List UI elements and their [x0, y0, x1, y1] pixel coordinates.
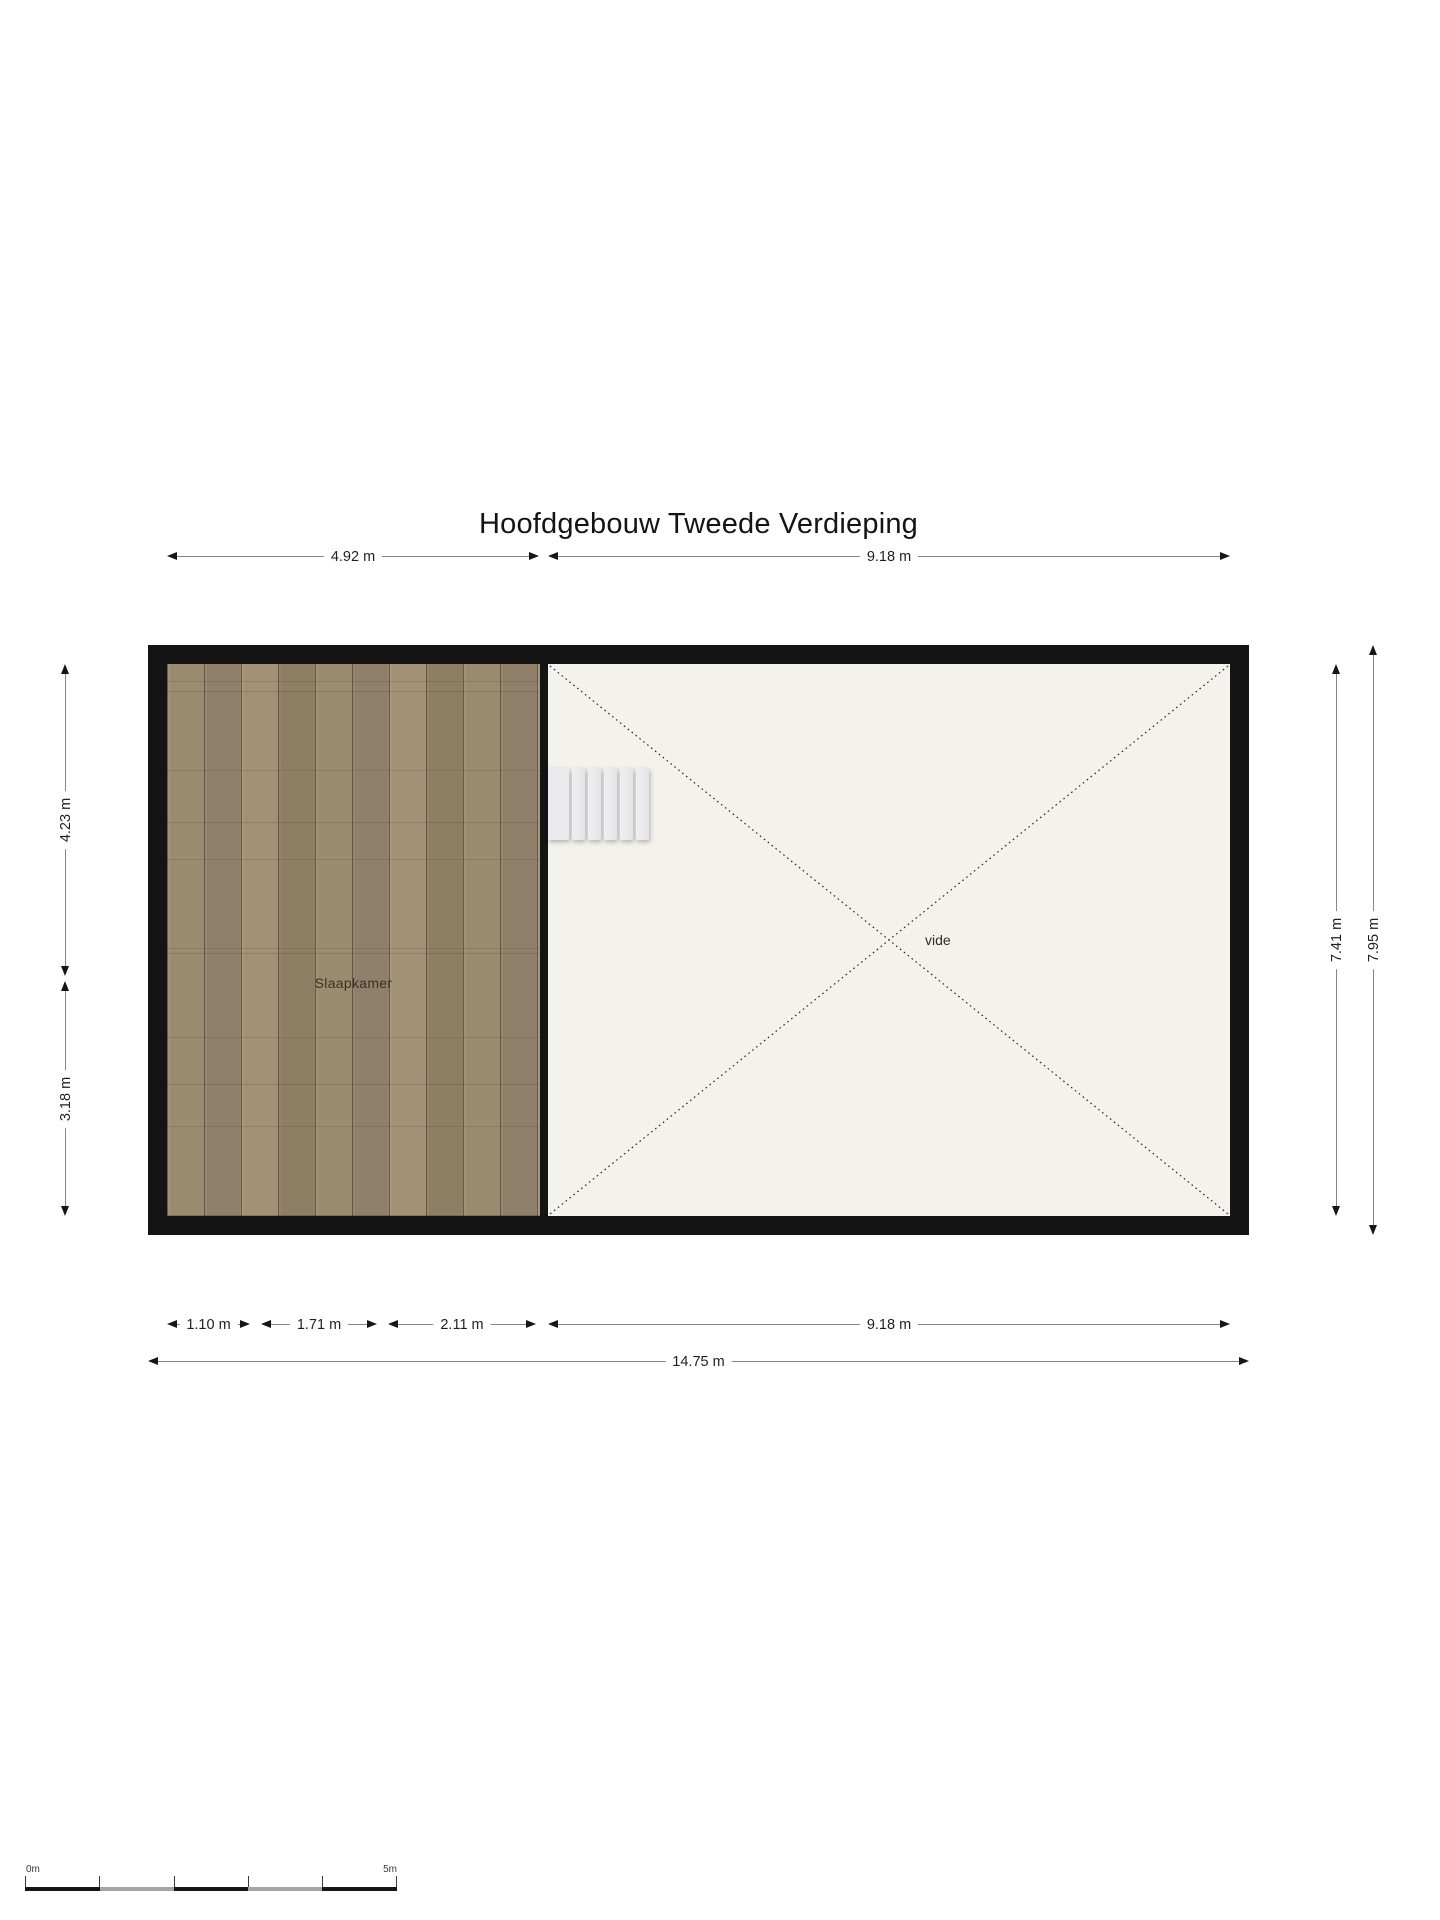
- scale-segment: [174, 1887, 249, 1891]
- area-vide-label: vide: [925, 932, 951, 948]
- room-slaapkamer-label: Slaapkamer: [315, 975, 393, 991]
- arrow-left-icon: [548, 1320, 558, 1328]
- dim-right-inner-height: 7.41 m: [1329, 664, 1345, 1216]
- arrow-down-icon: [61, 1206, 69, 1216]
- dim-bottom-seg-4: 9.18 m: [548, 1317, 1230, 1333]
- stair-tread: [588, 768, 601, 840]
- dimension-label: 4.23 m: [58, 791, 74, 849]
- dim-right-outer-height: 7.95 m: [1366, 645, 1382, 1235]
- scale-end-label: 5m: [383, 1864, 397, 1875]
- vide-cross-icon: [548, 664, 1230, 1216]
- arrow-down-icon: [61, 966, 69, 976]
- stair-tread: [604, 768, 617, 840]
- scale-segment: [25, 1887, 100, 1891]
- scale-segment: [100, 1887, 175, 1891]
- dimension-label: 9.18 m: [860, 1317, 918, 1333]
- arrow-right-icon: [1220, 1320, 1230, 1328]
- scale-segment: [322, 1887, 397, 1891]
- dim-bottom-seg-2: 1.71 m: [261, 1317, 377, 1333]
- dim-top-slaapkamer-width: 4.92 m: [167, 549, 539, 565]
- area-vide: vide: [548, 664, 1230, 1216]
- stair-landing: [548, 768, 569, 840]
- dim-bottom-total-width: 14.75 m: [148, 1354, 1249, 1370]
- arrow-up-icon: [61, 981, 69, 991]
- dimension-label: 9.18 m: [860, 549, 918, 565]
- arrow-right-icon: [1220, 552, 1230, 560]
- arrow-right-icon: [1239, 1357, 1249, 1365]
- dim-left-lower: 3.18 m: [58, 981, 74, 1216]
- arrow-left-icon: [388, 1320, 398, 1328]
- room-slaapkamer: Slaapkamer: [167, 664, 540, 1216]
- arrow-down-icon: [1369, 1225, 1377, 1235]
- floor-plan: Slaapkamer vide: [148, 645, 1249, 1235]
- arrow-right-icon: [529, 552, 539, 560]
- arrow-right-icon: [526, 1320, 536, 1328]
- scale-start-label: 0m: [26, 1864, 40, 1875]
- arrow-left-icon: [548, 552, 558, 560]
- arrow-up-icon: [1369, 645, 1377, 655]
- arrow-right-icon: [240, 1320, 250, 1328]
- arrow-up-icon: [1332, 664, 1340, 674]
- dimension-label: 1.71 m: [290, 1317, 348, 1333]
- dim-bottom-seg-3: 2.11 m: [388, 1317, 536, 1333]
- stair-tread: [636, 768, 649, 840]
- dimension-label: 4.92 m: [324, 549, 382, 565]
- page-title: Hoofdgebouw Tweede Verdieping: [148, 506, 1249, 542]
- dimension-label: 2.11 m: [433, 1317, 490, 1333]
- arrow-left-icon: [148, 1357, 158, 1365]
- arrow-left-icon: [167, 552, 177, 560]
- dimension-label: 3.18 m: [58, 1069, 74, 1127]
- dim-top-vide-width: 9.18 m: [548, 549, 1230, 565]
- scale-bar: 0m 5m: [25, 1864, 397, 1892]
- scale-segment: [248, 1887, 323, 1891]
- dimension-label: 7.41 m: [1329, 911, 1345, 969]
- dimension-label: 7.95 m: [1366, 911, 1382, 969]
- stairs: [548, 768, 649, 840]
- arrow-left-icon: [167, 1320, 177, 1328]
- stair-tread: [620, 768, 633, 840]
- dimension-label: 14.75 m: [665, 1354, 731, 1370]
- arrow-right-icon: [367, 1320, 377, 1328]
- stair-tread: [572, 768, 585, 840]
- dim-left-upper: 4.23 m: [58, 664, 74, 976]
- dim-bottom-seg-1: 1.10 m: [167, 1317, 250, 1333]
- dimension-label: 1.10 m: [179, 1317, 237, 1333]
- arrow-left-icon: [261, 1320, 271, 1328]
- arrow-down-icon: [1332, 1206, 1340, 1216]
- arrow-up-icon: [61, 664, 69, 674]
